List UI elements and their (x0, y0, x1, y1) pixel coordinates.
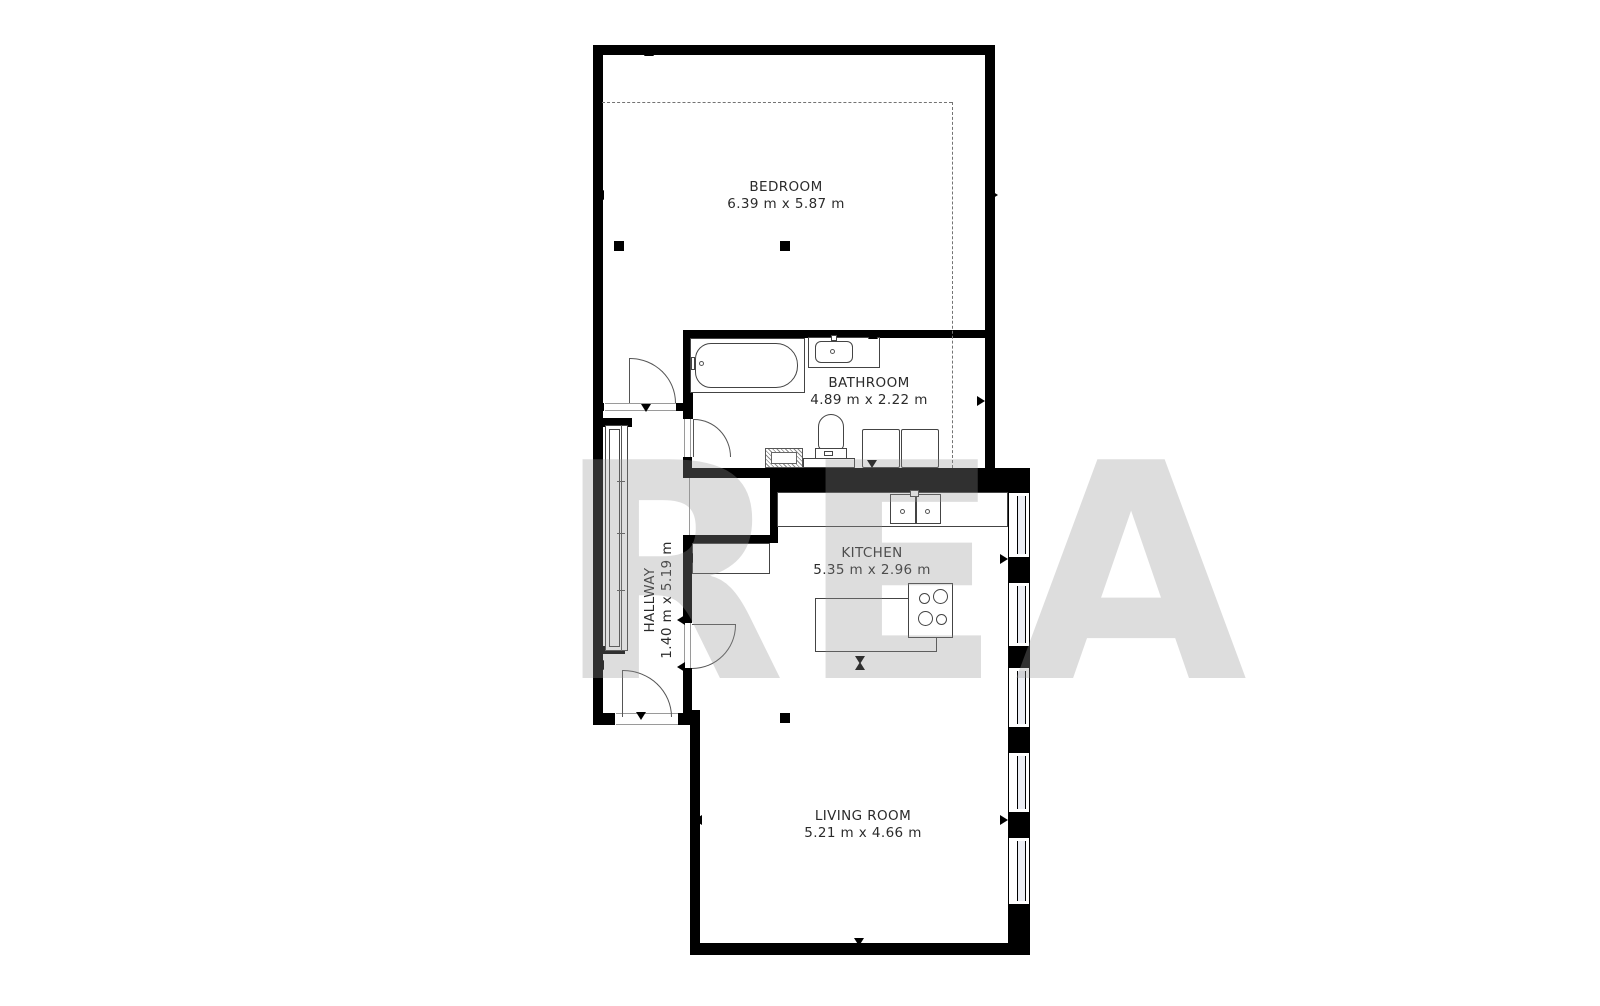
dimension-arrow-icon (636, 712, 646, 720)
wall (683, 411, 692, 419)
dimension-arrow-icon (641, 404, 651, 412)
burner-icon (933, 589, 948, 604)
wardrobe-panel-joint (617, 590, 625, 591)
dimension-arrow-icon (851, 484, 861, 492)
dimension-arrow-icon (596, 190, 604, 200)
sink-drain (830, 349, 835, 354)
dimension-arrow-icon (685, 395, 693, 405)
dimension-arrow-icon (596, 660, 604, 670)
window-glazing (1017, 496, 1026, 554)
wall (1008, 558, 1030, 582)
toilet-flush-button (824, 451, 833, 456)
room-name: LIVING ROOM (804, 808, 922, 825)
wardrobe-panel-joint (617, 533, 625, 534)
wall (985, 45, 995, 492)
room-dimensions: 5.35 m x 2.96 m (813, 562, 931, 579)
wall (690, 710, 700, 955)
room-dimensions: 6.39 m x 5.87 m (727, 196, 845, 213)
dimension-arrow-icon (854, 938, 864, 946)
wardrobe-sliding-door (621, 425, 622, 651)
burner-icon (936, 614, 947, 625)
wall (683, 468, 778, 478)
burner-icon (918, 611, 933, 626)
dimension-arrow-icon (1000, 815, 1008, 825)
room-name: BATHROOM (810, 375, 928, 392)
dimension-arrow-icon (867, 460, 877, 468)
room-dimensions: 1.40 m x 5.19 m (659, 541, 676, 659)
room-name: KITCHEN (813, 545, 931, 562)
window-glazing (1017, 841, 1026, 901)
dimension-arrow-icon (990, 190, 998, 200)
window-glazing (1017, 756, 1026, 809)
door-threshold (690, 623, 691, 668)
wall (683, 535, 692, 623)
toilet-icon (818, 414, 844, 450)
door-threshold (616, 724, 678, 725)
sink-drain (925, 509, 930, 514)
burner-icon (919, 593, 930, 604)
bedroom-label: BEDROOM 6.39 m x 5.87 m (727, 179, 845, 212)
wall (683, 668, 692, 713)
room-name: BEDROOM (727, 179, 845, 196)
wall (1008, 647, 1030, 667)
dimension-arrow-icon (685, 553, 693, 563)
wall (593, 45, 603, 725)
kitchen-tap-icon (910, 490, 919, 497)
opening-line (689, 478, 690, 535)
toilet-base-shelf (803, 458, 855, 468)
ceiling-break-dashed-line (602, 102, 952, 103)
bathtub-faucet-icon (691, 357, 695, 370)
dimension-arrow-icon (977, 396, 985, 406)
column-marker (780, 713, 790, 723)
kitchen-label: KITCHEN 5.35 m x 2.96 m (813, 545, 931, 578)
wall (687, 535, 778, 543)
window-glazing (1017, 586, 1026, 643)
dimension-arrow-icon (644, 48, 654, 56)
door-swing-arc (630, 358, 676, 403)
wall (1008, 813, 1030, 837)
door-swing-arc (623, 670, 672, 717)
washing-machine-icon (901, 429, 939, 468)
room-dimensions: 5.21 m x 4.66 m (804, 825, 922, 842)
dimension-arrow-icon (1000, 554, 1008, 564)
wall (593, 403, 604, 411)
bathtub-drain (699, 361, 704, 366)
sink-tap-icon (831, 335, 837, 341)
bath-mat-inner (771, 452, 797, 464)
wall (778, 468, 1030, 492)
dimension-arrow-icon (694, 815, 702, 825)
dimension-arrow-icon (677, 662, 685, 672)
hallway-label: HALLWAY 1.40 m x 5.19 m (642, 541, 676, 659)
wall (1008, 728, 1030, 752)
bathroom-label: BATHROOM 4.89 m x 2.22 m (810, 375, 928, 408)
door-threshold (684, 419, 685, 457)
door-threshold (690, 419, 691, 457)
bathtub-basin (695, 343, 798, 388)
column-marker (780, 241, 790, 251)
door-swing-arc (694, 419, 731, 457)
wall (593, 713, 615, 725)
dimension-arrow-icon (855, 662, 865, 670)
door-leaf (692, 624, 736, 625)
room-name: HALLWAY (642, 541, 659, 659)
door-leaf (693, 419, 694, 457)
door-leaf (622, 670, 623, 717)
dimension-arrow-icon (677, 615, 685, 625)
floor-plan: BEDROOM 6.39 m x 5.87 m BATHROOM 4.89 m … (0, 0, 1600, 1006)
window-glazing (1017, 671, 1026, 724)
door-swing-arc (692, 625, 736, 669)
dimension-arrow-icon (868, 331, 878, 339)
room-dimensions: 4.89 m x 2.22 m (810, 392, 928, 409)
wardrobe-panel-joint (617, 481, 625, 482)
sink-drain (900, 509, 905, 514)
wardrobe-inner (609, 429, 620, 647)
living-room-label: LIVING ROOM 5.21 m x 4.66 m (804, 808, 922, 841)
ceiling-break-dashed-line (952, 102, 953, 468)
door-leaf (629, 358, 630, 403)
column-marker (614, 241, 624, 251)
wall (1008, 905, 1030, 955)
kitchen-cabinet (692, 543, 770, 574)
